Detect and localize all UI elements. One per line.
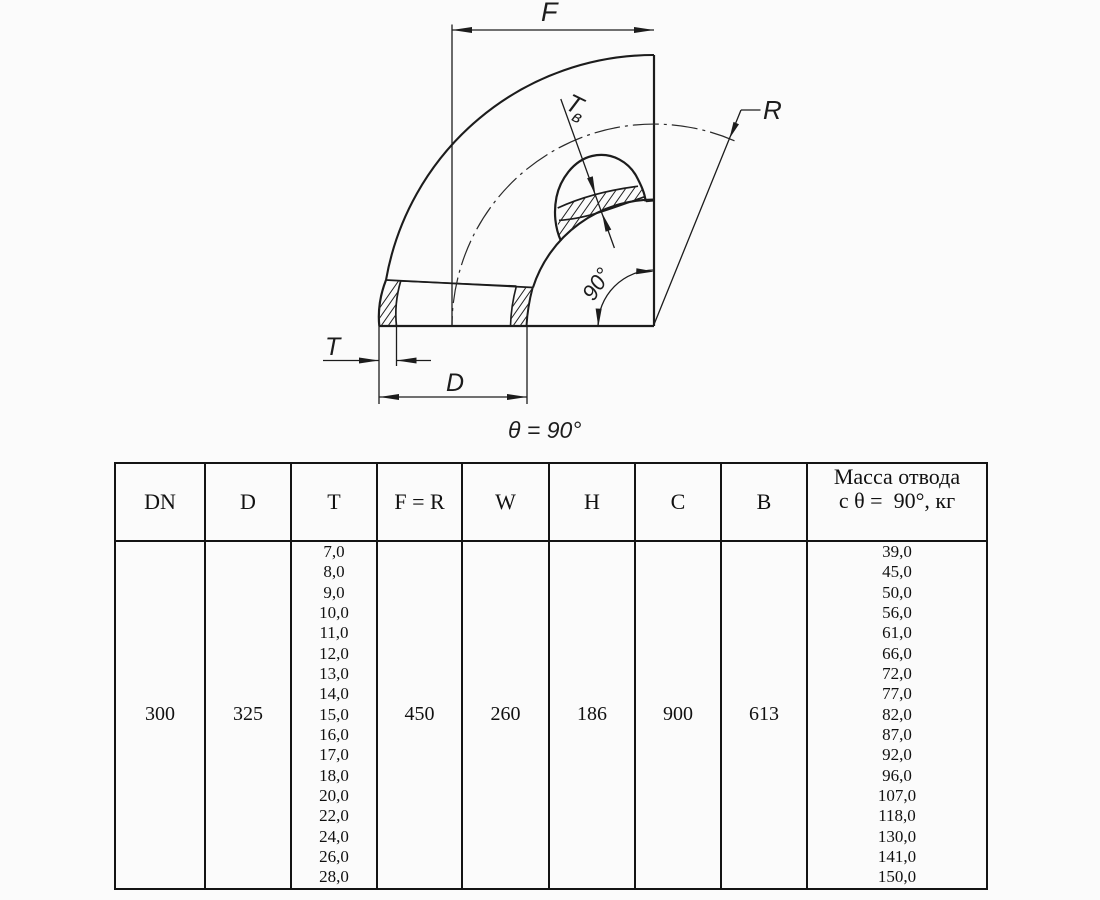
svg-text:θ = 90°: θ = 90°	[508, 417, 581, 443]
svg-text:F: F	[541, 0, 559, 27]
svg-text:90°: 90°	[577, 263, 616, 305]
svg-text:T: T	[325, 333, 342, 361]
svg-text:R: R	[763, 95, 782, 125]
svg-text:D: D	[446, 369, 464, 397]
